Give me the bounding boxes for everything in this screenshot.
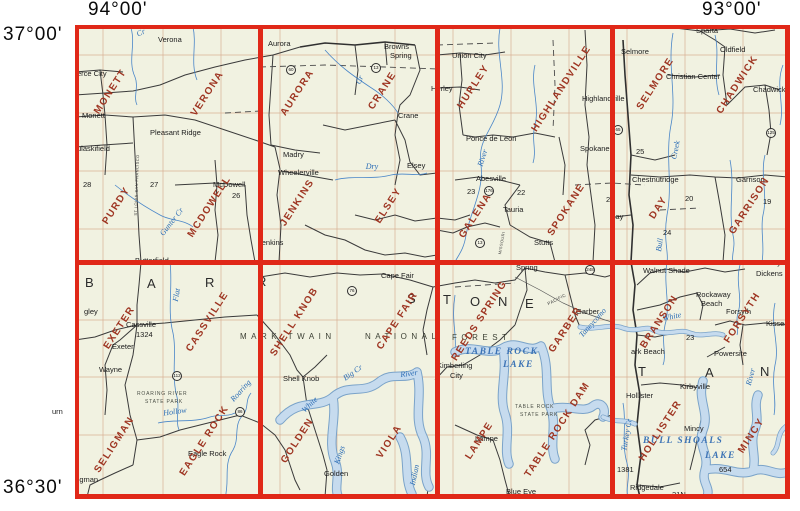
county-letter-taney: N [760,365,769,378]
creek-label: Dry [366,163,378,171]
park-label: ROARING RIVER [137,392,187,397]
town-label: Kirbyville [680,383,710,391]
town-label: ulaskifield [77,145,110,153]
town-label: Wayne [99,366,122,374]
town-label: Chadwick [753,86,786,94]
longitude-label-west: 94°00' [88,0,148,19]
index-grid-line [75,260,790,265]
town-label: Highlandville [582,95,625,103]
town-label: Chestnutridge [632,176,679,184]
town-label: Aurora [268,40,291,48]
town-label: Beach [701,300,722,308]
town-label: Cape Fair [381,272,414,280]
town-label: Elsey [407,162,425,170]
county-letter-stone: O [470,295,480,308]
park-label: STATE PARK [520,413,558,418]
highway-shield: 86 [235,407,245,417]
town-label: Ridgedale [630,484,664,492]
town-label: Pleasant Ridge [150,129,201,137]
town-label: erce City [77,70,107,78]
town-label: Dickens [756,270,783,278]
longitude-label-east: 93°00' [702,0,762,19]
lake-label-table-rock: LAKE [503,361,534,371]
town-label: Golden [324,470,348,478]
town-label: Spokane [580,145,610,153]
lake-label-bull-shoals: LAKE [705,452,736,462]
park-label: STATE PARK [145,400,183,405]
index-grid-line [75,494,790,499]
town-label: urn [52,408,63,416]
highway-shield: 248 [585,265,595,275]
town-label: Spring [516,264,538,272]
county-letter-taney: A [705,366,714,379]
town-label: Abesville [476,175,506,183]
town-label: Verona [158,36,182,44]
town-label: Cassville [126,321,156,329]
town-label: Browns [384,43,409,51]
elevation-label: 1381 [617,466,634,474]
park-label: TABLE ROCK [515,405,554,410]
section-number: 27 [150,181,158,189]
town-label: Oldfield [720,46,745,54]
town-label: Ponce de Leon [466,135,516,143]
county-letter-stone: T [443,293,451,306]
index-grid-line [75,25,790,29]
highway-shield: 13 [371,63,381,73]
elevation-label: 654 [719,466,732,474]
town-label: Selmore [621,48,649,56]
county-letter-stone: E [525,297,534,310]
town-label: Stutts [534,239,553,247]
section-number: 26 [232,192,240,200]
highway-shield: 13 [475,238,485,248]
section-number: 23 [686,334,694,342]
town-label: Kimberling [437,362,472,370]
section-number: 19 [763,198,771,206]
town-label: Shell Knob [283,375,319,383]
section-number: 25 [636,148,644,156]
town-label: Christian Center [666,73,720,81]
county-letter-taney: T [638,365,646,378]
town-label: Union City [452,52,487,60]
town-label: Wheelerville [278,169,319,177]
highway-shield: 60 [286,65,296,75]
town-label: Mincy [684,425,704,433]
section-number: 23 [467,188,475,196]
highway-shield: 112 [172,371,182,381]
latitude-label-north: 37°00' [3,25,63,44]
boundary-dashes [225,40,700,287]
town-label: Hollister [626,392,653,400]
lake-label-table-rock: TABLE ROCK [465,348,538,358]
section-number: 20 [685,195,693,203]
town-label: gley [84,308,98,316]
town-label: Walnut Shade [643,267,690,275]
elevation-label: 1324 [136,331,153,339]
section-number: 22 [517,189,525,197]
county-letter-barry: A [147,277,156,290]
town-label: Powersite [714,350,747,358]
county-letter-barry: R [205,276,214,289]
section-number: 28 [83,181,91,189]
town-label: Madry [283,151,304,159]
forest-label: NATIONAL [365,333,440,341]
latitude-label-south: 36°30' [3,478,63,497]
section-number: 24 [663,229,671,237]
town-label: City [450,372,463,380]
town-label: ligman [76,476,98,484]
highway-shield: 125 [766,128,776,138]
town-label: Spring [390,52,412,60]
town-label: Crane [398,112,418,120]
county-letter-barry: B [85,276,94,289]
town-label: Rockaway [696,291,731,299]
highway-shield: 76 [347,286,357,296]
town-label: Tauria [503,206,523,214]
map-area: Verona erce City Monett Pleasant Ridge u… [75,25,790,499]
map-index-sheet: 94°00' 93°00' 37°00' 36°30' urn [0,0,800,511]
